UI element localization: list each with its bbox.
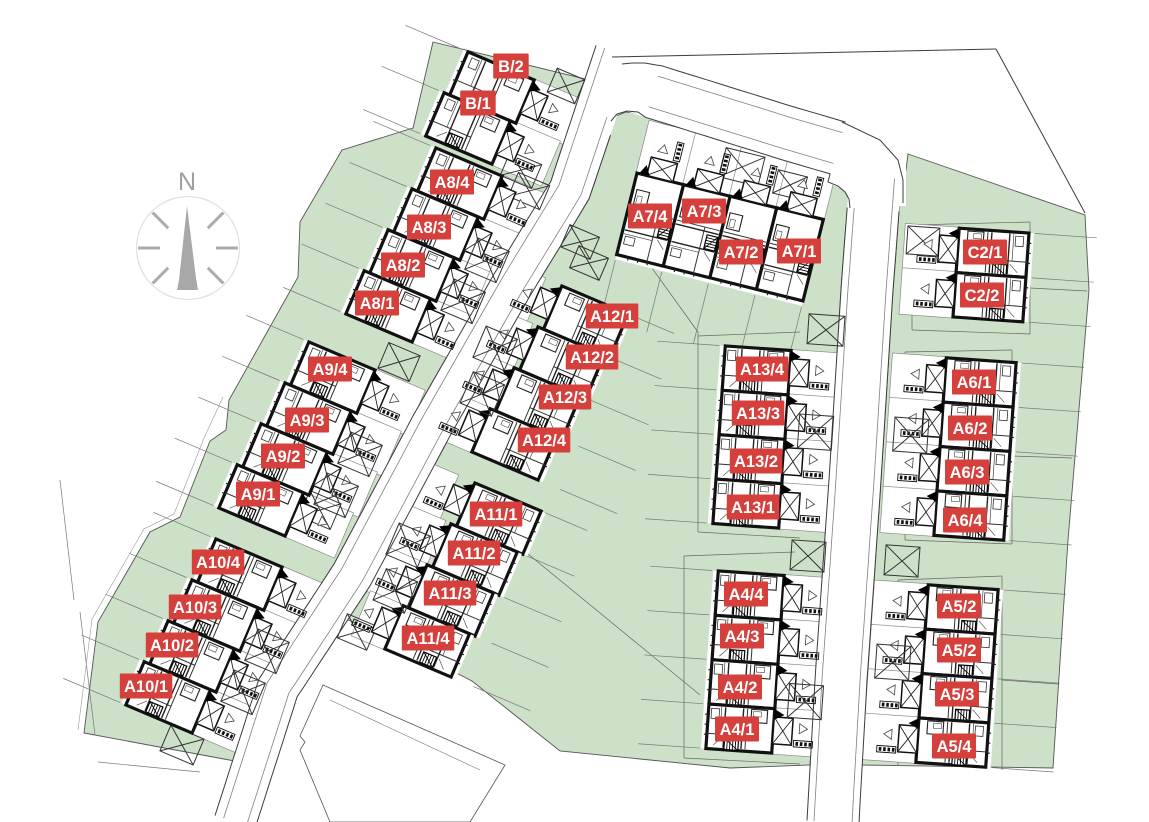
svg-text:A13/2: A13/2 xyxy=(734,453,778,471)
svg-text:A11/3: A11/3 xyxy=(428,585,471,603)
svg-text:B/1: B/1 xyxy=(465,95,491,113)
svg-text:C2/2: C2/2 xyxy=(965,287,1000,305)
svg-text:N: N xyxy=(178,168,196,196)
svg-text:A6/3: A6/3 xyxy=(950,464,985,482)
svg-text:A5/2: A5/2 xyxy=(942,598,977,616)
svg-text:A13/1: A13/1 xyxy=(731,499,775,517)
svg-text:A7/3: A7/3 xyxy=(687,203,722,221)
svg-text:A9/1: A9/1 xyxy=(241,486,276,504)
svg-text:A6/4: A6/4 xyxy=(948,512,984,530)
svg-text:A8/2: A8/2 xyxy=(386,257,421,275)
svg-text:A4/4: A4/4 xyxy=(729,586,765,604)
svg-text:A8/4: A8/4 xyxy=(435,174,471,192)
svg-text:A6/1: A6/1 xyxy=(957,374,992,392)
svg-text:A5/2: A5/2 xyxy=(942,642,977,660)
svg-text:A13/3: A13/3 xyxy=(736,405,780,423)
svg-text:A8/1: A8/1 xyxy=(360,295,395,313)
svg-text:A9/3: A9/3 xyxy=(290,412,325,430)
svg-text:A8/3: A8/3 xyxy=(412,219,447,237)
svg-text:A5/3: A5/3 xyxy=(940,686,975,704)
svg-text:A7/1: A7/1 xyxy=(782,243,817,261)
svg-text:A10/4: A10/4 xyxy=(196,554,241,572)
svg-text:A10/3: A10/3 xyxy=(173,599,217,617)
svg-text:A12/2: A12/2 xyxy=(570,349,614,367)
svg-text:A7/2: A7/2 xyxy=(724,244,759,262)
svg-text:A11/4: A11/4 xyxy=(406,630,450,648)
svg-text:B/2: B/2 xyxy=(498,58,524,76)
svg-text:A13/4: A13/4 xyxy=(740,361,785,379)
svg-text:A10/1: A10/1 xyxy=(124,678,168,696)
svg-text:A11/1: A11/1 xyxy=(474,506,517,524)
svg-text:A12/3: A12/3 xyxy=(543,389,587,407)
svg-text:A4/1: A4/1 xyxy=(720,721,755,739)
svg-text:A12/4: A12/4 xyxy=(522,432,567,450)
svg-text:A4/3: A4/3 xyxy=(725,628,760,646)
svg-text:A10/2: A10/2 xyxy=(150,637,194,655)
svg-text:A12/1: A12/1 xyxy=(590,308,634,326)
svg-text:A6/2: A6/2 xyxy=(953,420,988,438)
svg-text:A5/4: A5/4 xyxy=(937,738,973,756)
svg-text:A9/4: A9/4 xyxy=(313,361,349,379)
svg-text:C2/1: C2/1 xyxy=(968,244,1003,262)
svg-text:A4/2: A4/2 xyxy=(723,679,758,697)
svg-text:A11/2: A11/2 xyxy=(452,545,495,563)
svg-text:A9/2: A9/2 xyxy=(266,448,301,466)
svg-text:A7/4: A7/4 xyxy=(633,208,669,226)
